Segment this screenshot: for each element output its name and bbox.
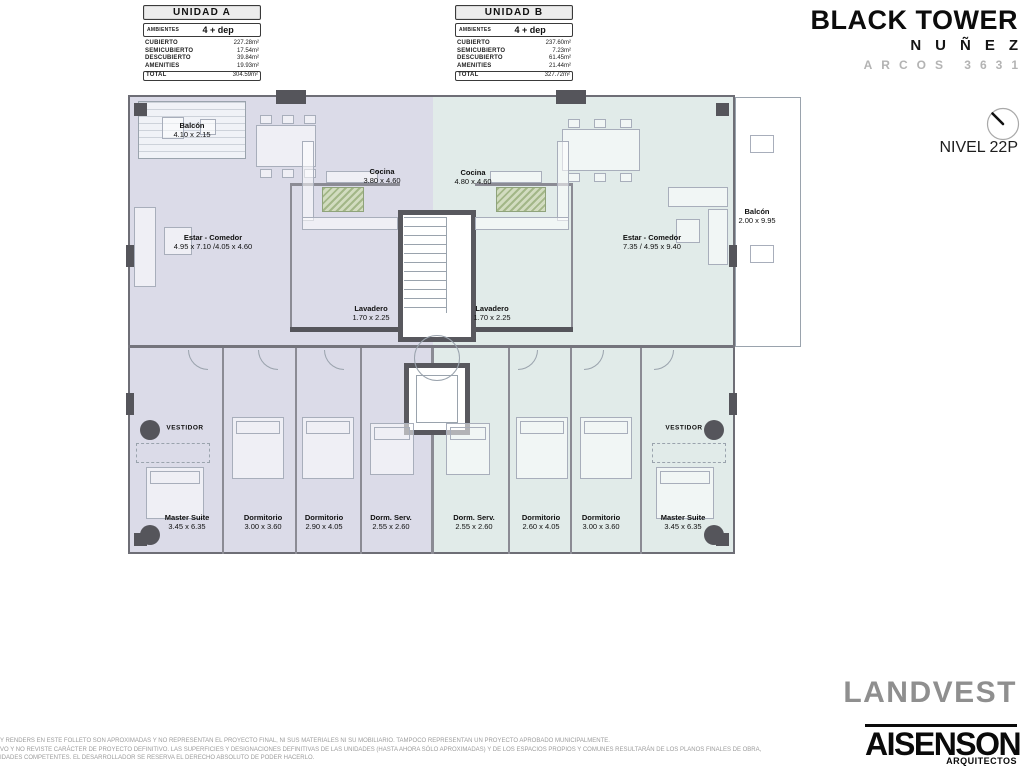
round-column <box>704 420 724 440</box>
sofa <box>708 209 728 265</box>
unit-a-legend: UNIDAD A AMBIENTES 4 + dep CUBIERTO227.2… <box>143 5 261 81</box>
wall <box>290 185 292 328</box>
bed-master-b <box>656 467 714 519</box>
room-label-master-b: Master Suite3.45 x 6.35 <box>661 513 706 531</box>
column <box>134 103 147 116</box>
room-label-lavadero-b: Lavadero1.70 x 2.25 <box>473 304 510 322</box>
ambientes-label: AMBIENTES <box>459 27 491 33</box>
chair <box>260 169 272 178</box>
area-row: AMENITIES21.44m² <box>455 63 573 71</box>
brochure-page: UNIDAD A AMBIENTES 4 + dep CUBIERTO227.2… <box>0 0 1024 768</box>
bed <box>516 417 568 479</box>
landvest-logo: LANDVEST <box>843 676 1017 710</box>
level-label: NIVEL 22P <box>934 139 1018 157</box>
ambientes-label: AMBIENTES <box>147 27 179 33</box>
area-row: CUBIERTO237.60m² <box>455 40 573 48</box>
room-label-cocina-b: Cocina4.80 x 4.60 <box>454 168 491 186</box>
unit-a-title: UNIDAD A <box>143 5 261 20</box>
balcony-table <box>750 245 774 263</box>
unit-a-areas: CUBIERTO227.28m² SEMICUBIERTO17.54m² DES… <box>143 40 261 81</box>
kitchen-counter <box>302 217 398 230</box>
column <box>556 90 586 104</box>
unit-b-areas: CUBIERTO237.60m² SEMICUBIERTO7.23m² DESC… <box>455 40 573 81</box>
chair <box>594 173 606 182</box>
unit-b-ambientes: AMBIENTES 4 + dep <box>455 23 573 37</box>
wall <box>571 185 573 328</box>
bed-master-a <box>146 467 204 519</box>
bed <box>302 417 354 479</box>
room-label-dorm2-b: Dormitorio3.00 x 3.60 <box>582 513 620 531</box>
bed-service <box>446 423 490 475</box>
sofa <box>134 207 156 287</box>
room-label-dorm1-b: Dormitorio2.60 x 4.05 <box>522 513 560 531</box>
column <box>126 393 134 415</box>
room-label-dormserv-b: Dorm. Serv.2.55 x 2.60 <box>453 513 495 531</box>
wardrobe <box>652 443 726 463</box>
project-subtitle: NUÑEZ <box>811 34 1024 57</box>
area-total-row: TOTAL327.72m² <box>455 71 573 81</box>
column <box>729 245 737 267</box>
area-row: SEMICUBIERTO17.54m² <box>143 48 261 56</box>
unit-b-legend: UNIDAD B AMBIENTES 4 + dep CUBIERTO237.6… <box>455 5 573 81</box>
ambientes-value: 4 + dep <box>179 25 257 35</box>
legal-disclaimer: Y RENDERS EN ESTE FOLLETO SON APROXIMADA… <box>0 737 840 763</box>
wall-bearing <box>475 327 573 332</box>
aisenson-logo: AISENSON ARQUITECTOS <box>865 724 1017 766</box>
chair <box>260 115 272 124</box>
room-label-vestidor-b: VESTIDOR <box>665 424 702 433</box>
unit-b-title: UNIDAD B <box>455 5 573 20</box>
column <box>276 90 306 104</box>
area-row: CUBIERTO227.28m² <box>143 40 261 48</box>
unit-a-ambientes: AMBIENTES 4 + dep <box>143 23 261 37</box>
kitchen-counter <box>475 217 569 230</box>
elevator-cab <box>416 375 458 423</box>
lobby-door-swing <box>414 335 460 381</box>
room-label-master-a: Master Suite3.45 x 6.35 <box>165 513 210 531</box>
chair <box>304 115 316 124</box>
kitchen-counter <box>557 141 569 221</box>
wall <box>640 348 642 554</box>
kitchen-counter <box>302 141 314 221</box>
balcony-table <box>750 135 774 153</box>
stair-divider <box>446 217 447 313</box>
wall <box>295 348 297 554</box>
bed <box>232 417 284 479</box>
round-column <box>704 525 724 545</box>
room-label-vestidor-a: VESTIDOR <box>166 424 203 433</box>
round-column <box>140 420 160 440</box>
room-label-cocina-a: Cocina3.80 x 4.60 <box>363 167 400 185</box>
chair <box>282 115 294 124</box>
wall-bearing <box>290 327 400 332</box>
chair <box>594 119 606 128</box>
area-row: DESCUBIERTO39.84m² <box>143 55 261 63</box>
wall <box>222 348 224 554</box>
wall <box>360 348 362 554</box>
room-label-balcon-a: Balcón4.10 x 2.15 <box>173 121 210 139</box>
column <box>126 245 134 267</box>
room-label-dorm2-a: Dormitorio2.90 x 4.05 <box>305 513 343 531</box>
room-label-estar-a: Estar - Comedor4.95 x 7.10 /4.05 x 4.60 <box>174 233 252 251</box>
bed-service <box>370 423 414 475</box>
dining-table <box>562 129 640 171</box>
area-row: SEMICUBIERTO7.23m² <box>455 48 573 56</box>
chair <box>282 169 294 178</box>
column <box>729 393 737 415</box>
chair <box>568 119 580 128</box>
area-row: AMENITIES19.93m² <box>143 63 261 71</box>
round-column <box>140 525 160 545</box>
sofa <box>668 187 728 207</box>
room-label-estar-b: Estar - Comedor7.35 / 4.95 x 9.40 <box>623 233 681 251</box>
room-label-balcon-b: Balcón2.00 x 9.95 <box>738 207 775 225</box>
area-row: DESCUBIERTO61.45m² <box>455 55 573 63</box>
room-label-lavadero-a: Lavadero1.70 x 2.25 <box>352 304 389 322</box>
brand-block: BLACK TOWER NUÑEZ ARCOS 3631 <box>811 6 1019 73</box>
project-address: ARCOS 3631 <box>811 57 1024 73</box>
wall <box>508 348 510 554</box>
chair <box>568 173 580 182</box>
project-title: BLACK TOWER <box>811 6 1019 34</box>
planter <box>322 187 364 212</box>
ambientes-value: 4 + dep <box>491 25 569 35</box>
room-label-dormserv-a: Dorm. Serv.2.55 x 2.60 <box>370 513 412 531</box>
wardrobe <box>136 443 210 463</box>
chair <box>620 173 632 182</box>
chair <box>620 119 632 128</box>
area-total-row: TOTAL304.59m² <box>143 71 261 81</box>
column <box>716 103 729 116</box>
stair-treads <box>404 217 446 313</box>
kitchen-island <box>490 171 542 183</box>
planter <box>496 187 546 212</box>
floor-plan: Balcón4.10 x 2.15 Estar - Comedor4.95 x … <box>128 95 804 555</box>
room-label-dorm1-a: Dormitorio3.00 x 3.60 <box>244 513 282 531</box>
wall <box>570 348 572 554</box>
bed <box>580 417 632 479</box>
